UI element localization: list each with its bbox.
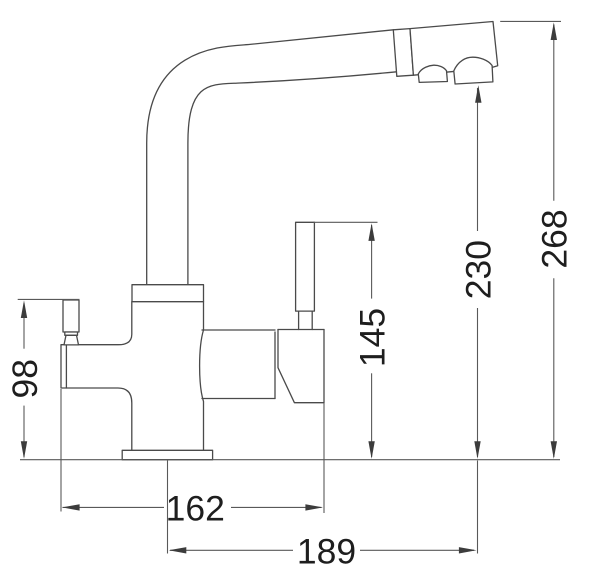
svg-text:230: 230: [459, 240, 499, 299]
svg-text:189: 189: [297, 532, 356, 566]
svg-text:145: 145: [353, 308, 393, 367]
svg-text:98: 98: [5, 359, 45, 399]
svg-text:162: 162: [166, 489, 225, 529]
svg-text:268: 268: [535, 209, 575, 268]
